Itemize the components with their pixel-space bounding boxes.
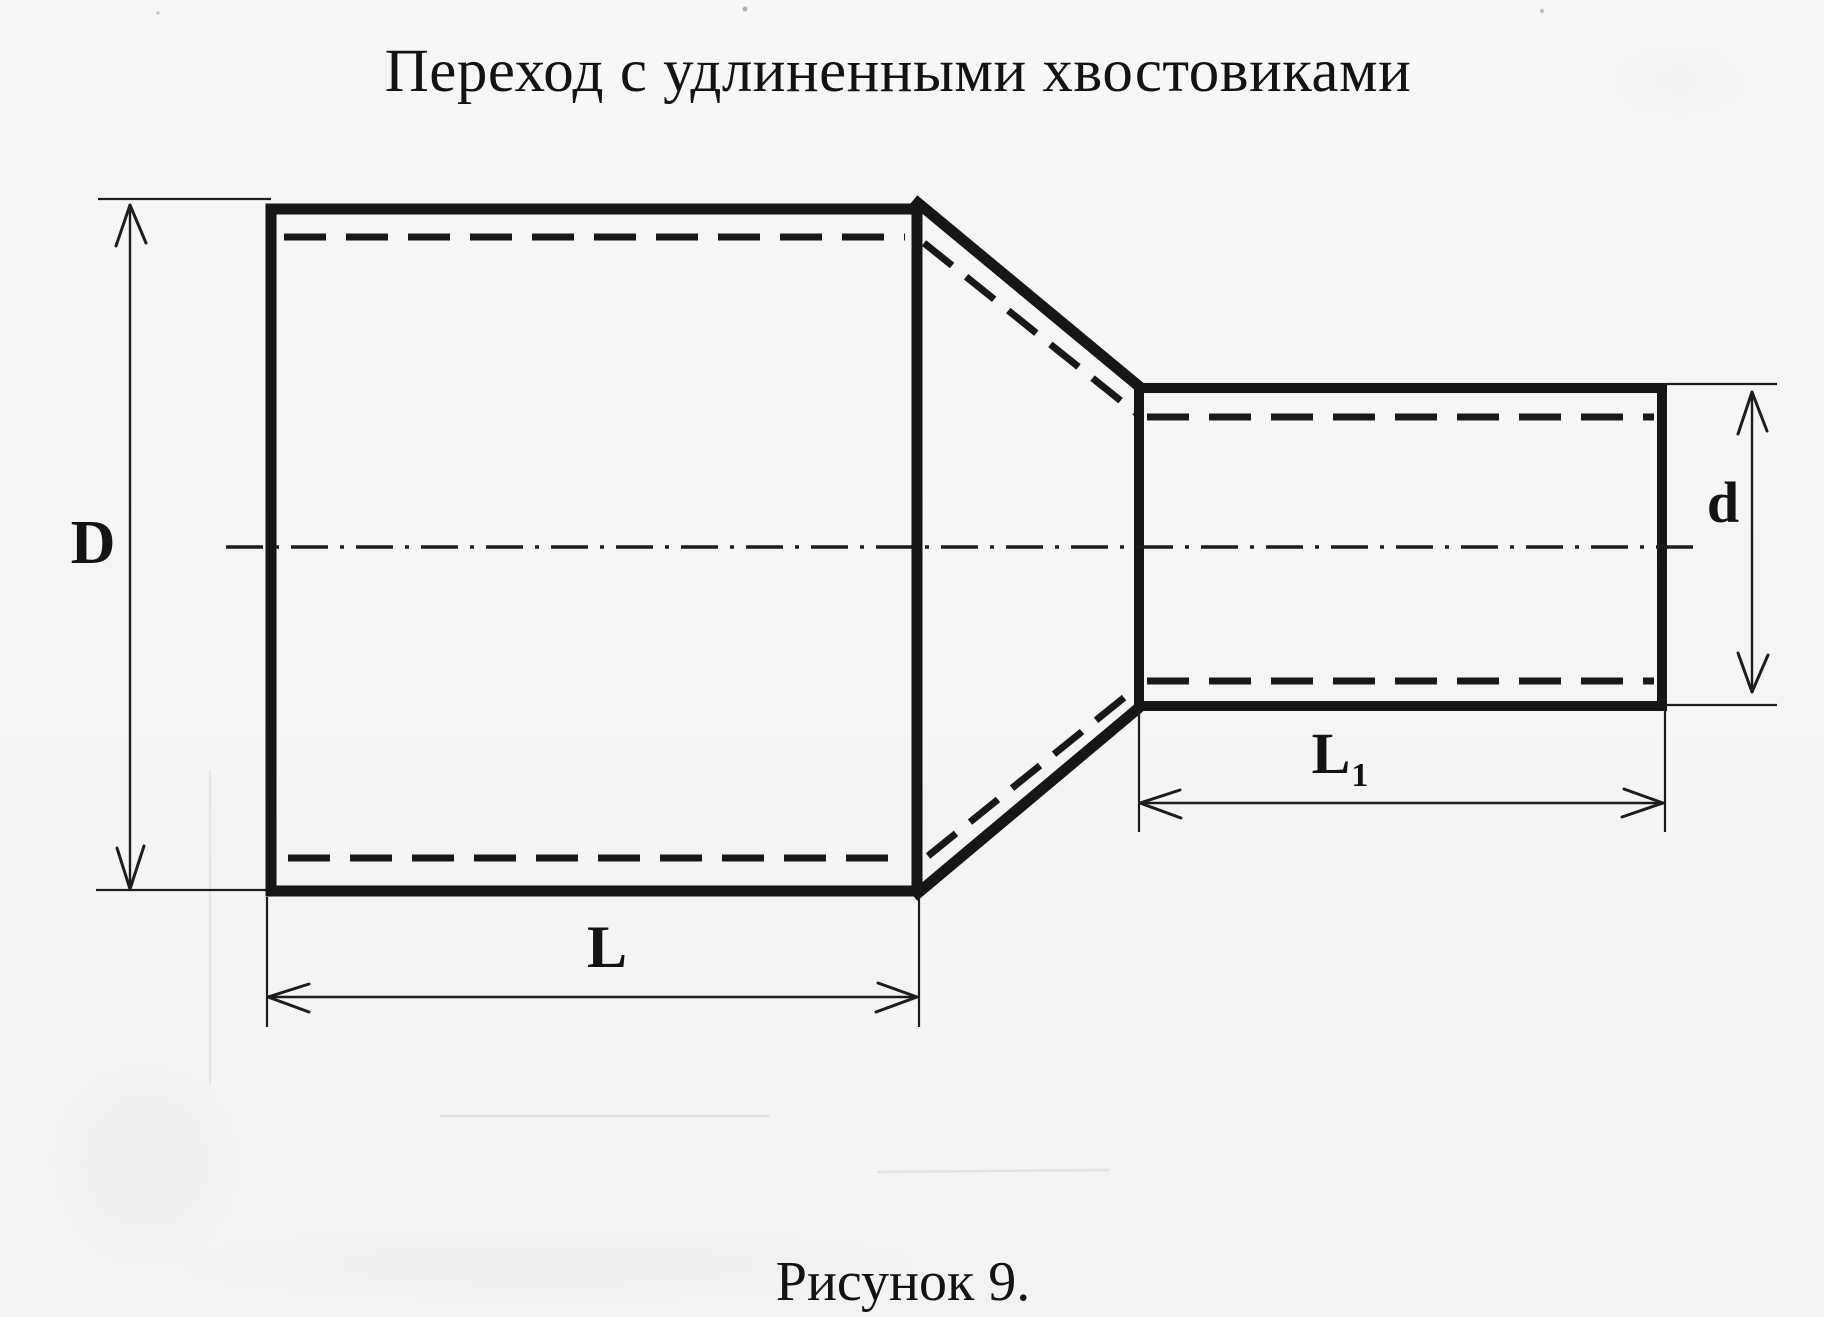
dim-label-d: d	[1707, 470, 1739, 535]
scan-speck	[743, 7, 748, 12]
technical-drawing: Переход с удлиненными хвостовиками	[0, 0, 1824, 1317]
figure-caption: Рисунок 9.	[776, 1251, 1030, 1313]
inner-wall-cone-bottom	[928, 688, 1136, 856]
dimension-d: d	[1666, 384, 1777, 705]
scan-speck	[156, 11, 159, 14]
scanned-drawing-page: Переход с удлиненными хвостовиками	[0, 0, 1824, 1317]
drawing-title: Переход с удлиненными хвостовиками	[385, 38, 1412, 105]
scan-streak	[877, 1170, 1109, 1172]
cone-top-edge	[918, 203, 1141, 388]
dim-label-L1-main: L	[1312, 721, 1351, 786]
dimension-L: L	[267, 897, 919, 1027]
dimension-D: D	[71, 199, 271, 890]
inner-wall-cone-top	[924, 243, 1136, 413]
scan-speck	[1540, 9, 1544, 13]
dim-label-D: D	[71, 509, 116, 577]
dim-label-L: L	[587, 914, 627, 980]
dimension-L1: L1	[1139, 711, 1665, 832]
cone-bottom-edge	[918, 706, 1141, 893]
dim-label-L1-subscript: 1	[1351, 757, 1368, 794]
dim-label-L1: L1	[1312, 721, 1369, 794]
big-pipe-outline	[271, 209, 917, 891]
